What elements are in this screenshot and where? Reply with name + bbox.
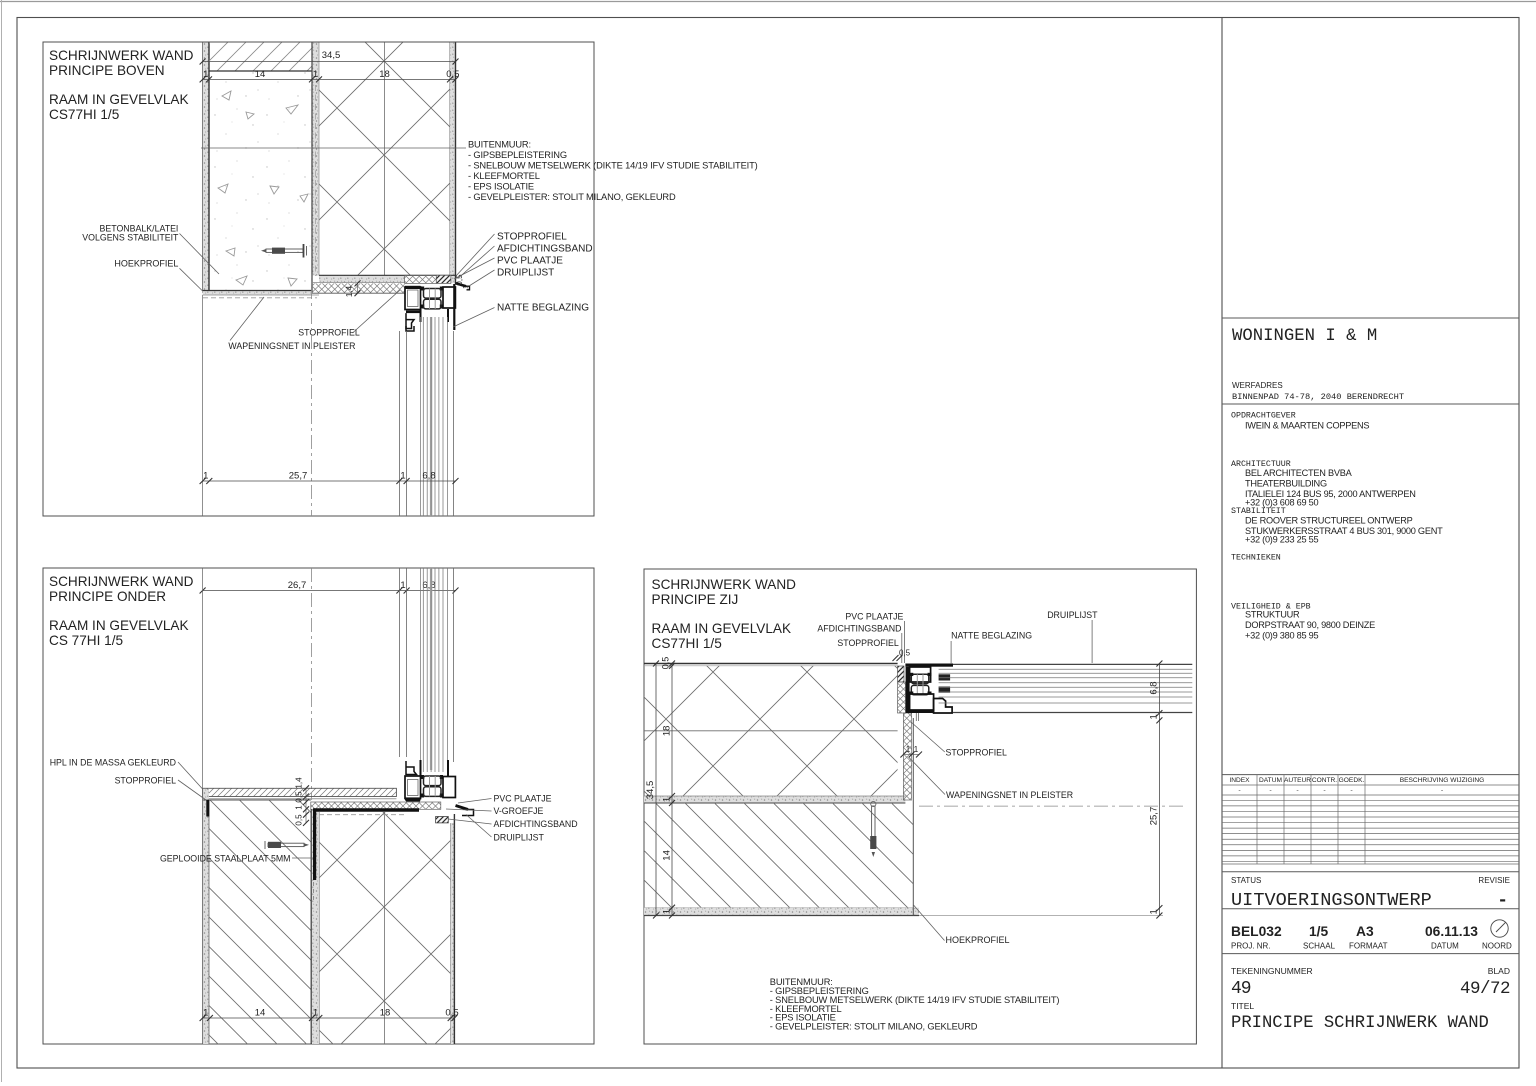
- svg-text:HOEKPROFIEL: HOEKPROFIEL: [946, 935, 1010, 945]
- svg-text:OPDRACHTGEVER: OPDRACHTGEVER: [1231, 412, 1296, 421]
- svg-text:1: 1: [463, 285, 470, 289]
- svg-text:1: 1: [662, 797, 673, 802]
- svg-text:PRINCIPE SCHRIJNWERK WAND: PRINCIPE SCHRIJNWERK WAND: [1231, 1014, 1489, 1033]
- svg-text:TITEL: TITEL: [1231, 1001, 1254, 1011]
- svg-text:STOPPROFIEL: STOPPROFIEL: [298, 327, 360, 337]
- svg-text:1: 1: [313, 1008, 318, 1019]
- svg-text:AFDICHTINGSBAND: AFDICHTINGSBAND: [817, 624, 901, 634]
- svg-text:1: 1: [313, 69, 318, 80]
- svg-text:0,5: 0,5: [295, 791, 304, 803]
- svg-text:+32 (0)9 233 25 55: +32 (0)9 233 25 55: [1245, 535, 1319, 545]
- svg-text:6,8: 6,8: [1148, 681, 1159, 694]
- svg-text:- KLEEFMORTEL: - KLEEFMORTEL: [468, 171, 540, 181]
- svg-text:1: 1: [400, 580, 405, 591]
- svg-text:+32 (0)9 380 85 95: +32 (0)9 380 85 95: [1245, 631, 1319, 641]
- svg-text:25,7: 25,7: [1148, 807, 1159, 826]
- svg-text:6,8: 6,8: [422, 580, 435, 591]
- svg-text:WERFADRES: WERFADRES: [1232, 381, 1283, 390]
- svg-text:PRINCIPE ZIJ: PRINCIPE ZIJ: [652, 592, 739, 607]
- svg-text:SCHRIJNWERK WAND: SCHRIJNWERK WAND: [652, 577, 797, 592]
- svg-text:REVISIE: REVISIE: [1478, 876, 1510, 885]
- svg-text:TECHNIEKEN: TECHNIEKEN: [1231, 553, 1281, 562]
- svg-text:STRUKTUUR: STRUKTUUR: [1245, 610, 1300, 620]
- svg-text:0,5: 0,5: [661, 657, 671, 670]
- svg-text:BESCHRIJVING WIJZIGING: BESCHRIJVING WIJZIGING: [1400, 777, 1485, 784]
- svg-text:HPL IN DE MASSA GEKLEURD: HPL IN DE MASSA GEKLEURD: [50, 758, 176, 768]
- svg-text:UITVOERINGSONTWERP: UITVOERINGSONTWERP: [1231, 890, 1432, 911]
- svg-text:0,5: 0,5: [295, 814, 304, 826]
- svg-text:1: 1: [203, 69, 208, 80]
- svg-text:+32 (0)3 608 69 50: +32 (0)3 608 69 50: [1245, 498, 1319, 508]
- svg-text:RAAM IN GEVELVLAK: RAAM IN GEVELVLAK: [49, 92, 189, 107]
- svg-text:CS77HI 1/5: CS77HI 1/5: [49, 107, 119, 122]
- svg-text:18: 18: [662, 726, 673, 737]
- svg-text:RAAM IN GEVELVLAK: RAAM IN GEVELVLAK: [49, 618, 189, 633]
- svg-text:1: 1: [295, 805, 304, 810]
- svg-text:25,7: 25,7: [289, 471, 308, 482]
- svg-text:AFDICHTINGSBAND: AFDICHTINGSBAND: [497, 244, 593, 255]
- svg-text:BINNENPAD 74-78, 2040 BERENDRE: BINNENPAD 74-78, 2040 BERENDRECHT: [1232, 392, 1404, 402]
- svg-text:1: 1: [203, 1008, 208, 1019]
- svg-text:BEL032: BEL032: [1231, 924, 1282, 939]
- svg-text:GEPLOOIDE STAALPLAAT 5MM: GEPLOOIDE STAALPLAAT 5MM: [160, 854, 291, 864]
- svg-text:STOPPROFIEL: STOPPROFIEL: [946, 748, 1008, 758]
- svg-text:1: 1: [914, 745, 919, 754]
- svg-text:SCHRIJNWERK WAND: SCHRIJNWERK WAND: [49, 48, 194, 63]
- svg-text:1/5: 1/5: [1309, 924, 1329, 939]
- svg-text:A3: A3: [1356, 924, 1374, 939]
- svg-text:CONTR.: CONTR.: [1312, 777, 1337, 784]
- svg-text:1: 1: [1148, 909, 1159, 914]
- svg-text:-: -: [1497, 891, 1508, 911]
- svg-text:14: 14: [255, 1008, 266, 1019]
- svg-text:14: 14: [662, 850, 673, 861]
- svg-text:0,5: 0,5: [445, 1008, 458, 1019]
- svg-text:26,7: 26,7: [288, 580, 307, 591]
- svg-text:INDEX: INDEX: [1229, 777, 1250, 784]
- svg-text:NATTE BEGLAZING: NATTE BEGLAZING: [497, 303, 589, 314]
- svg-text:PVC PLAATJE: PVC PLAATJE: [845, 611, 903, 621]
- svg-text:BUITENMUUR:: BUITENMUUR:: [468, 140, 531, 150]
- svg-text:DORPSTRAAT 90, 9800 DEINZE: DORPSTRAAT 90, 9800 DEINZE: [1245, 620, 1375, 630]
- svg-text:PROJ. NR.: PROJ. NR.: [1231, 942, 1271, 951]
- svg-text:STATUS: STATUS: [1231, 876, 1261, 885]
- svg-text:1: 1: [203, 471, 208, 482]
- svg-text:PRINCIPE BOVEN: PRINCIPE BOVEN: [49, 63, 165, 78]
- svg-text:1,4: 1,4: [295, 777, 304, 789]
- svg-text:HOEKPROFIEL: HOEKPROFIEL: [114, 259, 178, 269]
- svg-text:1: 1: [906, 745, 911, 754]
- svg-text:WONINGEN I & M: WONINGEN I & M: [1232, 327, 1377, 346]
- svg-text:PVC PLAATJE: PVC PLAATJE: [497, 256, 563, 267]
- svg-text:6,8: 6,8: [422, 471, 435, 482]
- svg-text:THEATERBUILDING: THEATERBUILDING: [1245, 478, 1327, 488]
- svg-text:0,5: 0,5: [455, 274, 464, 286]
- svg-text:- GEVELPLEISTER: STOLIT MILANO: - GEVELPLEISTER: STOLIT MILANO, GEKLEURD: [468, 192, 676, 202]
- svg-text:1: 1: [400, 471, 405, 482]
- svg-text:CS77HI 1/5: CS77HI 1/5: [652, 636, 722, 651]
- svg-text:34,5: 34,5: [322, 50, 341, 61]
- svg-text:PRINCIPE ONDER: PRINCIPE ONDER: [49, 589, 166, 604]
- svg-text:- SNELBOUW METSELWERK (DIKTE 1: - SNELBOUW METSELWERK (DIKTE 14/19 IFV S…: [468, 161, 758, 171]
- svg-text:34,5: 34,5: [645, 781, 656, 800]
- svg-text:NATTE BEGLAZING: NATTE BEGLAZING: [951, 631, 1032, 641]
- svg-text:SCHRIJNWERK WAND: SCHRIJNWERK WAND: [49, 574, 194, 589]
- svg-text:SCHAAL: SCHAAL: [1303, 942, 1336, 951]
- svg-text:CS 77HI 1/5: CS 77HI 1/5: [49, 633, 123, 648]
- svg-text:PVC PLAATJE: PVC PLAATJE: [494, 794, 552, 804]
- svg-text:18: 18: [380, 1008, 391, 1019]
- svg-text:06.11.13: 06.11.13: [1425, 924, 1478, 939]
- svg-text:1: 1: [1148, 714, 1159, 719]
- svg-text:BLAD: BLAD: [1488, 966, 1510, 976]
- svg-text:0,5: 0,5: [446, 69, 459, 80]
- svg-text:- GIPSBEPLEISTERING: - GIPSBEPLEISTERING: [468, 150, 567, 160]
- svg-text:18: 18: [379, 69, 390, 80]
- svg-text:WAPENINGSNET IN PLEISTER: WAPENINGSNET IN PLEISTER: [946, 790, 1073, 800]
- svg-text:FORMAAT: FORMAAT: [1349, 942, 1388, 951]
- svg-text:STOPPROFIEL: STOPPROFIEL: [115, 776, 177, 786]
- svg-text:49/72: 49/72: [1460, 979, 1510, 999]
- svg-text:DRUIPLIJST: DRUIPLIJST: [1047, 610, 1098, 620]
- svg-text:RAAM IN GEVELVLAK: RAAM IN GEVELVLAK: [652, 621, 792, 636]
- svg-text:WAPENINGSNET IN PLEISTER: WAPENINGSNET IN PLEISTER: [228, 341, 355, 351]
- svg-text:1,4: 1,4: [345, 285, 354, 297]
- svg-text:V-GROEFJE: V-GROEFJE: [494, 806, 544, 816]
- svg-text:BEL ARCHITECTEN BVBA: BEL ARCHITECTEN BVBA: [1245, 468, 1353, 478]
- svg-text:- GEVELPLEISTER: STOLIT MILANO: - GEVELPLEISTER: STOLIT MILANO, GEKLEURD: [770, 1022, 978, 1032]
- svg-text:IWEIN & MAARTEN COPPENS: IWEIN & MAARTEN COPPENS: [1245, 421, 1369, 431]
- svg-text:DRUIPLIJST: DRUIPLIJST: [494, 832, 545, 842]
- svg-text:- EPS ISOLATIE: - EPS ISOLATIE: [468, 182, 534, 192]
- svg-text:DATUM: DATUM: [1259, 777, 1282, 784]
- svg-text:GOEDK.: GOEDK.: [1339, 777, 1365, 784]
- svg-text:1: 1: [662, 909, 673, 914]
- svg-text:STOPPROFIEL: STOPPROFIEL: [497, 232, 567, 243]
- svg-text:TEKENINGNUMMER: TEKENINGNUMMER: [1231, 966, 1313, 976]
- svg-text:DATUM: DATUM: [1431, 942, 1459, 951]
- svg-text:AFDICHTINGSBAND: AFDICHTINGSBAND: [494, 819, 578, 829]
- svg-text:49: 49: [1231, 979, 1251, 999]
- svg-text:14: 14: [255, 69, 266, 80]
- svg-text:DE ROOVER STRUCTUREEL ONTWERP: DE ROOVER STRUCTUREEL ONTWERP: [1245, 516, 1413, 526]
- svg-text:DRUIPLIJST: DRUIPLIJST: [497, 268, 554, 279]
- svg-text:VOLGENS STABILITEIT: VOLGENS STABILITEIT: [82, 232, 179, 242]
- svg-text:AUTEUR: AUTEUR: [1284, 777, 1311, 784]
- svg-text:STOPPROFIEL: STOPPROFIEL: [837, 638, 899, 648]
- svg-text:NOORD: NOORD: [1482, 942, 1512, 951]
